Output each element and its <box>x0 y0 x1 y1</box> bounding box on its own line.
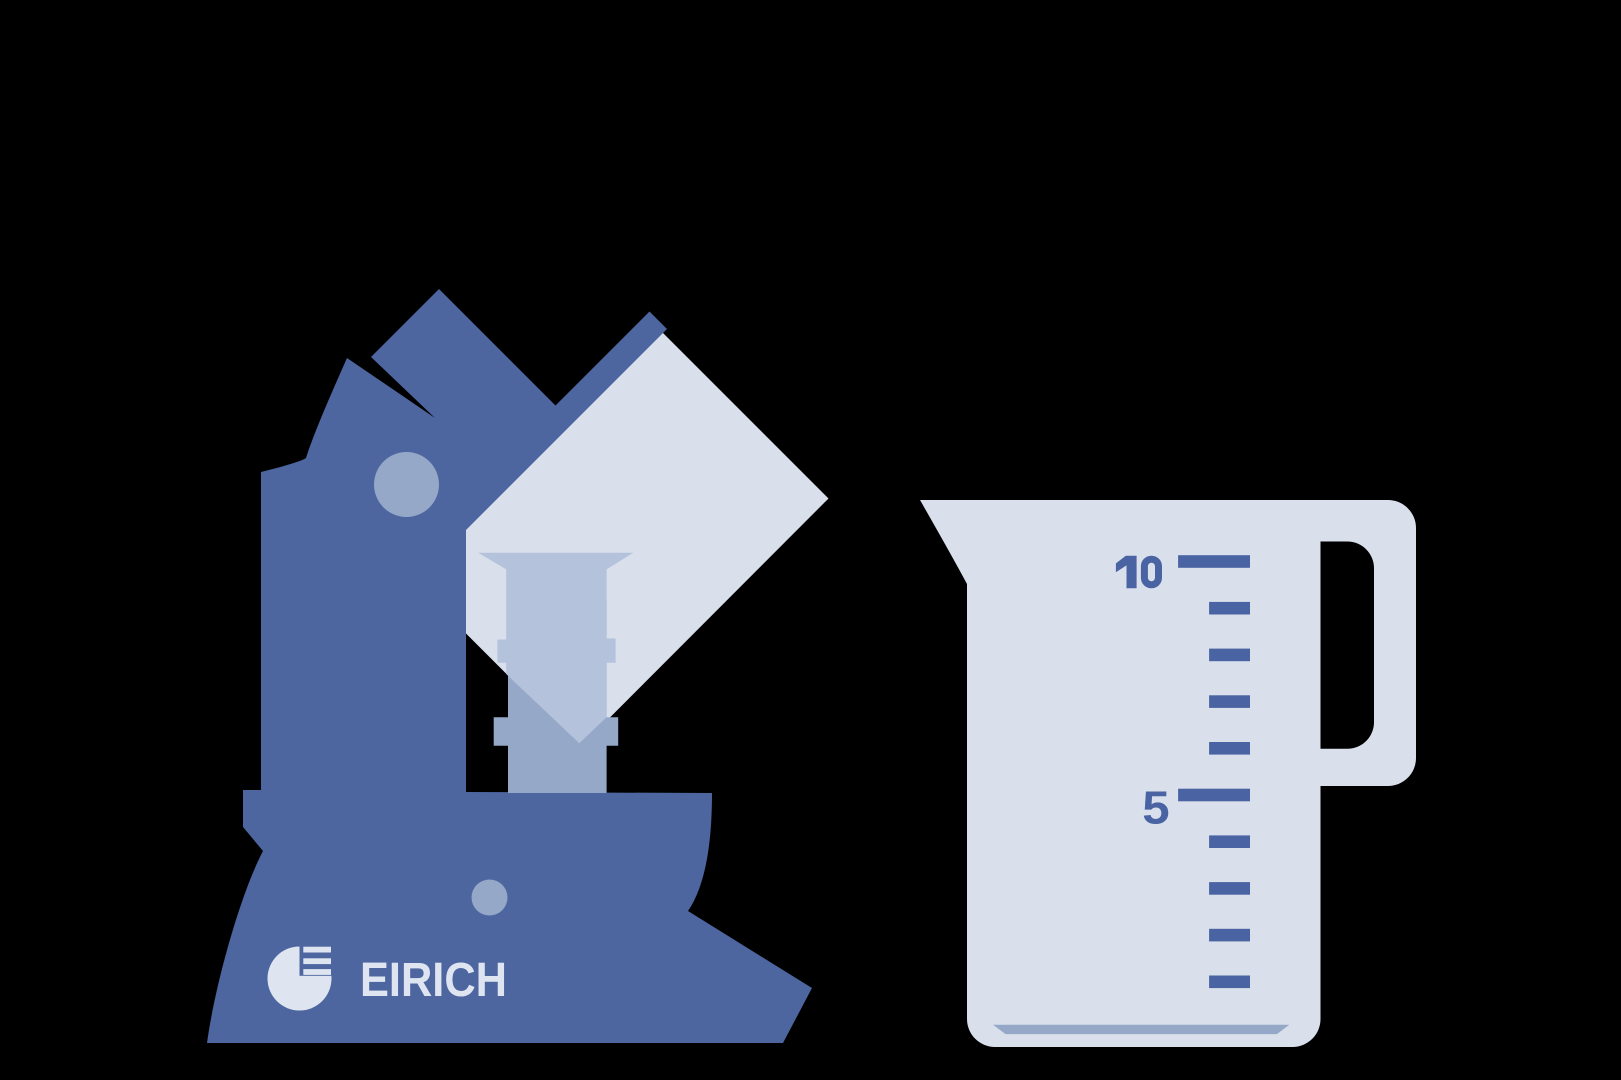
svg-text:EIRICH: EIRICH <box>360 954 507 1007</box>
svg-text:5: 5 <box>1142 783 1169 834</box>
